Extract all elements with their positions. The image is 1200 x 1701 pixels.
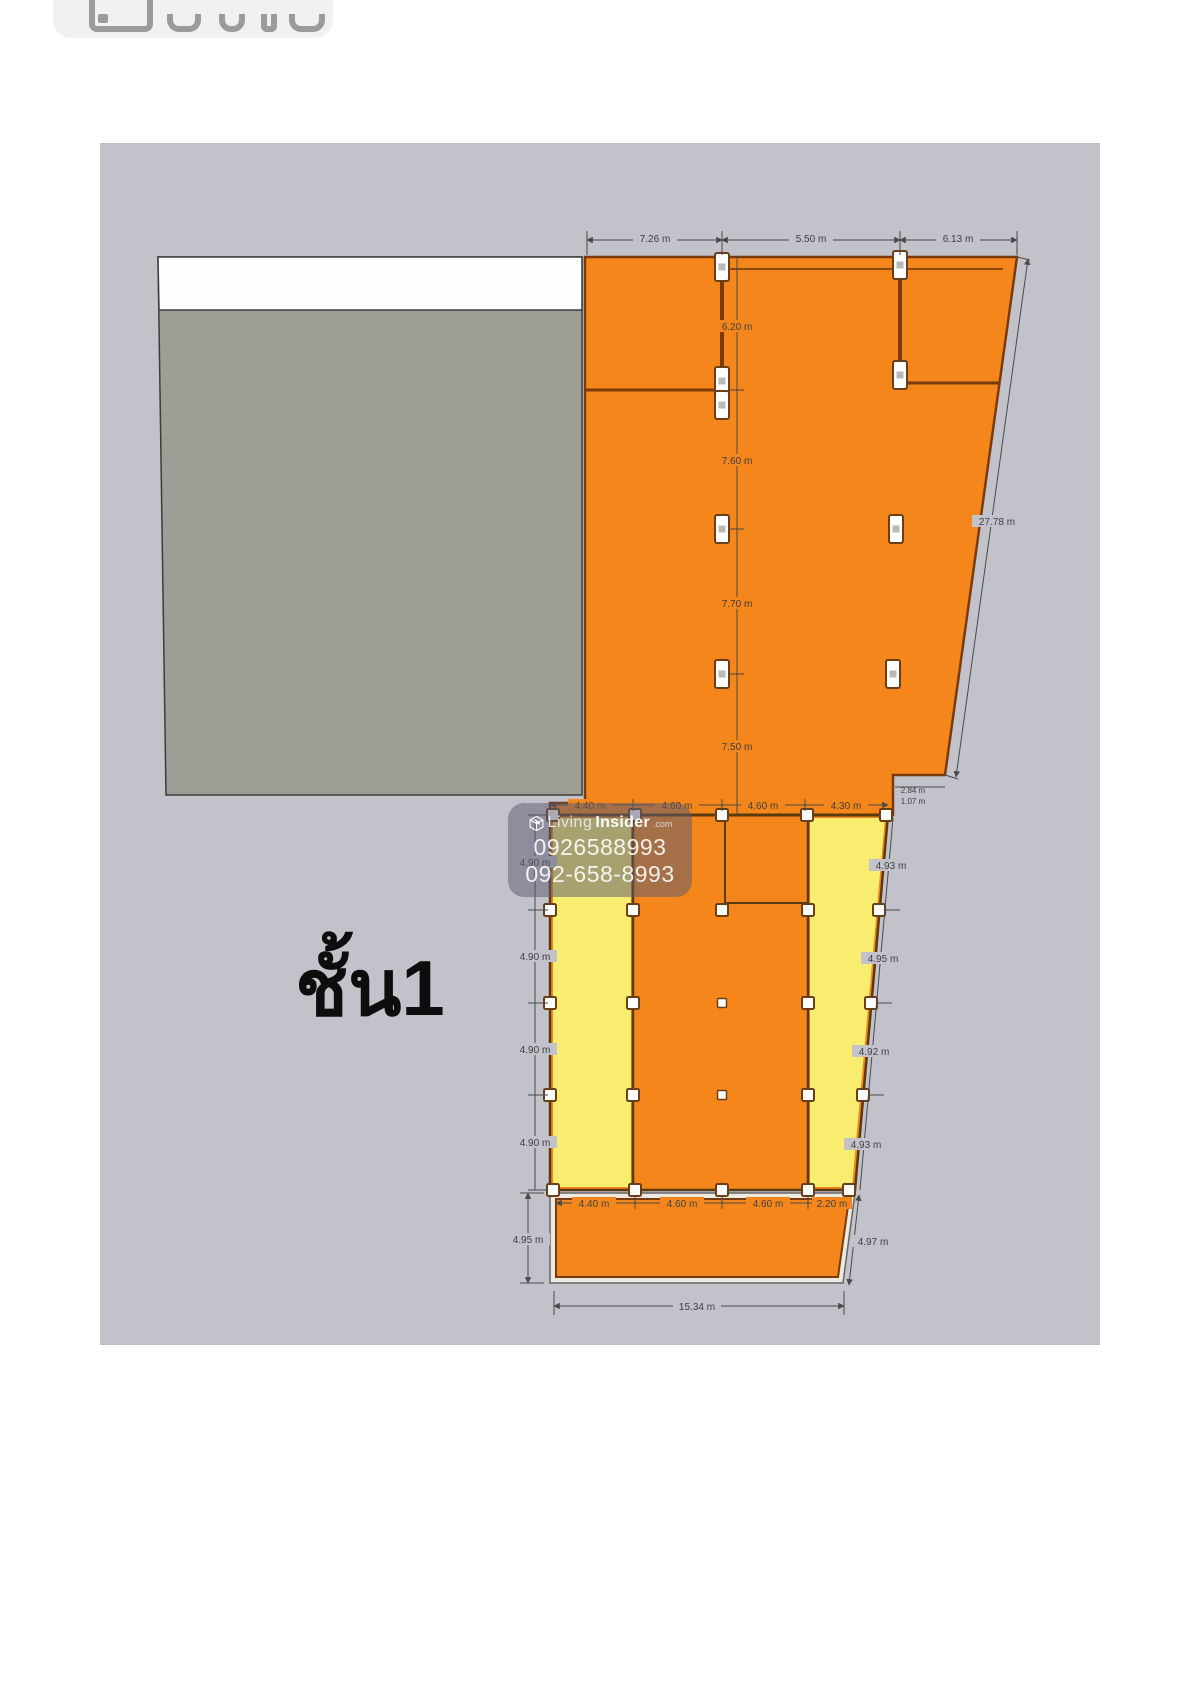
dim-label: 4.90 m: [520, 952, 551, 963]
watermark: LivingInsider.com 0926588993 092-658-899…: [508, 803, 692, 897]
dim-label: 7.50 m: [722, 742, 753, 753]
dim-label: 4.30 m: [831, 801, 862, 812]
floor-plan-drawing: 7.26 m 5.50 m 6.13 m 6.20 m 7.60 m 7.70 …: [100, 143, 1100, 1345]
floor-number-label: ชั้น1: [230, 948, 510, 1030]
dim-label: 15.34 m: [679, 1302, 715, 1313]
dim-label: 7.26 m: [640, 234, 671, 245]
dim-label: 6.20 m: [722, 322, 753, 333]
floor-plan-canvas: 7.26 m 5.50 m 6.13 m 6.20 m 7.60 m 7.70 …: [100, 143, 1100, 1345]
watermark-brand-living: Living: [548, 814, 593, 832]
watermark-brand: LivingInsider.com: [528, 814, 673, 833]
cropped-button-glyphs: [167, 14, 201, 32]
cropped-toolbar-button[interactable]: [53, 0, 333, 38]
dim-label: 4.40 m: [579, 1199, 610, 1210]
watermark-brand-insider: Insider: [595, 814, 650, 832]
dim-label: 27.78 m: [979, 517, 1015, 528]
adjacent-building-block: [158, 257, 582, 795]
dim-label: 4.97 m: [858, 1237, 889, 1248]
adjacent-building-white-band: [158, 257, 582, 310]
dim-label: 4.60 m: [748, 801, 779, 812]
dim-label: 6.13 m: [943, 234, 974, 245]
watermark-brand-suffix: .com: [653, 815, 673, 833]
dim-label: 4.60 m: [753, 1199, 784, 1210]
upper-hall: [550, 257, 1017, 815]
dim-label: 2.84 m: [901, 786, 926, 795]
dim-label: 5.50 m: [796, 234, 827, 245]
dim-label: 4.60 m: [667, 1199, 698, 1210]
bottom-strip: [556, 1199, 849, 1277]
dim-label: 1.07 m: [901, 797, 926, 806]
screen: { "toolbar": { "button_icon": "image-ico…: [0, 0, 1200, 1701]
dim-label: 2.20 m: [817, 1199, 848, 1210]
dim-label: 4.93 m: [876, 861, 907, 872]
dim-label: 4.90 m: [520, 1045, 551, 1056]
dim-label: 4.92 m: [859, 1047, 890, 1058]
watermark-phone-2: 092-658-8993: [525, 861, 674, 887]
dim-label: 7.60 m: [722, 456, 753, 467]
dim-label: 7.70 m: [722, 599, 753, 610]
image-icon: [89, 0, 153, 32]
dim-label: 4.90 m: [520, 1138, 551, 1149]
dim-label: 4.95 m: [868, 954, 899, 965]
watermark-phone-1: 0926588993: [534, 834, 667, 860]
dim-label: 4.93 m: [851, 1140, 882, 1151]
cube-logo-icon: [528, 815, 545, 832]
dim-label: 4.95 m: [513, 1235, 544, 1246]
